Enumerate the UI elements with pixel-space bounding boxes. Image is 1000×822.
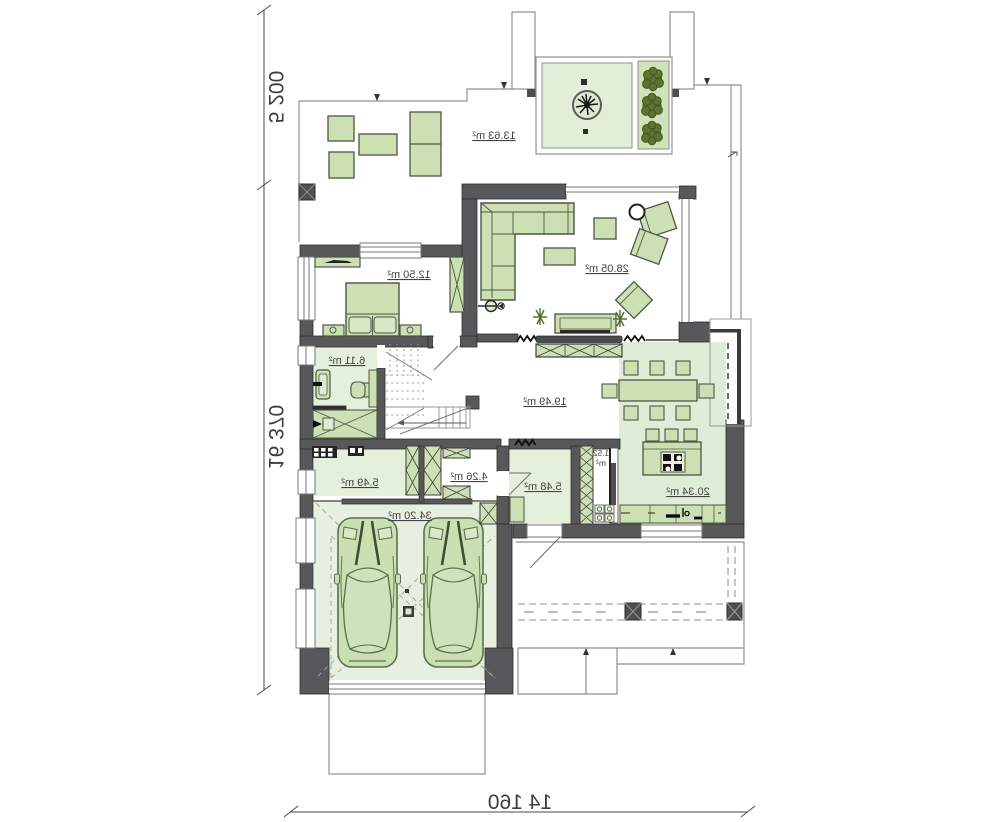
svg-text:1.52: 1.52 bbox=[592, 448, 609, 458]
svg-text:14 160: 14 160 bbox=[488, 791, 552, 814]
svg-text:16 370: 16 370 bbox=[264, 405, 287, 469]
svg-text:19.49 m²: 19.49 m² bbox=[523, 396, 567, 408]
svg-text:5.49 m²: 5.49 m² bbox=[341, 477, 379, 489]
svg-text:6.11 m²: 6.11 m² bbox=[328, 355, 365, 367]
svg-text:5.48 m²: 5.48 m² bbox=[524, 481, 562, 493]
svg-text:34.20 m²: 34.20 m² bbox=[388, 510, 432, 522]
svg-text:m²: m² bbox=[596, 458, 606, 468]
svg-text:5 200: 5 200 bbox=[264, 71, 287, 124]
svg-text:12.50 m²: 12.50 m² bbox=[387, 269, 431, 281]
svg-text:20.34 m²: 20.34 m² bbox=[666, 486, 710, 498]
svg-text:4.26 m²: 4.26 m² bbox=[450, 471, 488, 483]
svg-text:13.63 m²: 13.63 m² bbox=[472, 130, 516, 142]
svg-text:28.05 m²: 28.05 m² bbox=[585, 263, 629, 275]
